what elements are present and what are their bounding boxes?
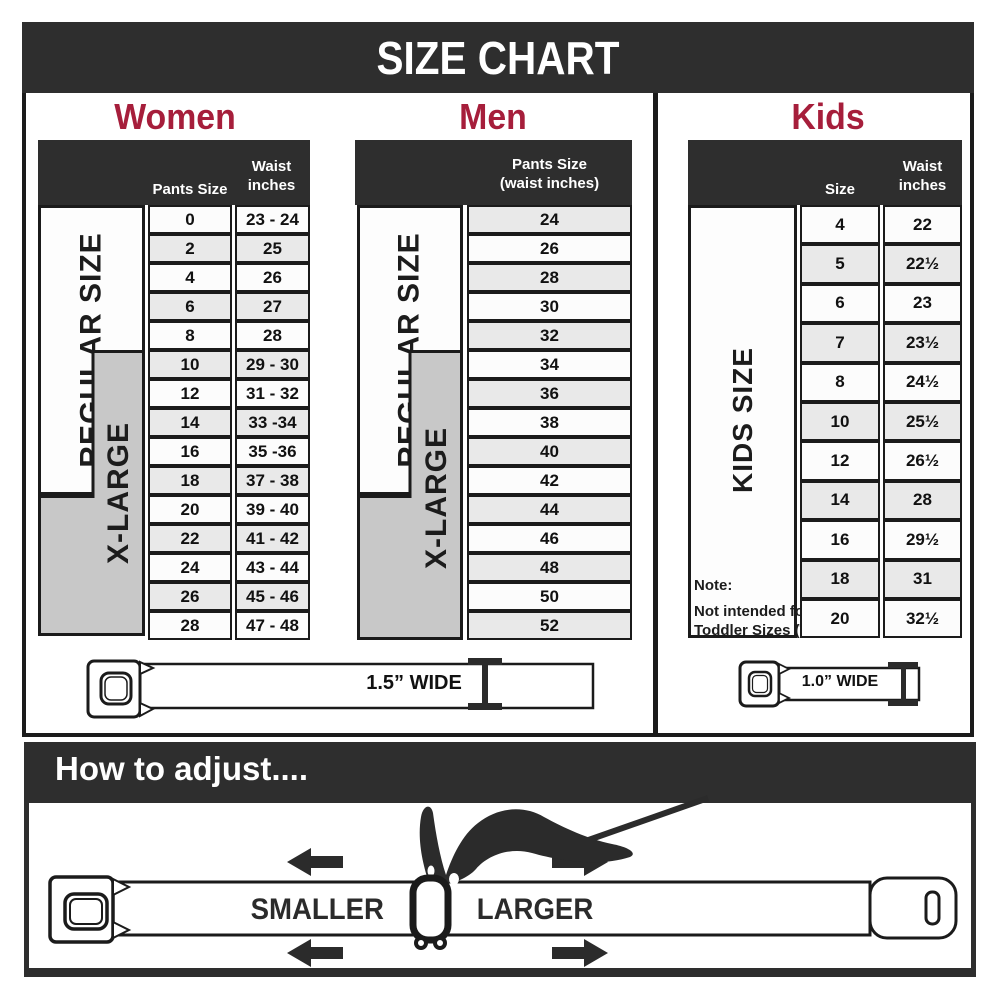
size-cell: 14 — [800, 481, 880, 520]
kids-size-label: KIDS SIZE — [688, 225, 797, 615]
men-col-pants-size: Pants Size (waist inches) — [467, 155, 632, 193]
waist-cell: 23½ — [883, 323, 962, 362]
size-cell: 20 — [800, 599, 880, 638]
waist-cell: 43 - 44 — [235, 553, 310, 582]
women-size-table: 023 - 242254266278281029 - 301231 - 3214… — [148, 205, 310, 640]
table-row: 2443 - 44 — [148, 553, 310, 582]
larger-label: LARGER — [471, 893, 600, 927]
waist-cell: 29½ — [883, 520, 962, 559]
hand-icon — [420, 798, 708, 886]
table-row: 623 — [800, 284, 962, 323]
table-row: 2241 - 42 — [148, 524, 310, 553]
size-cell: 16 — [800, 520, 880, 559]
kids-size-table: 422522½623723½824½1025½1226½14281629½183… — [800, 205, 962, 638]
pants-size-cell: 10 — [148, 350, 232, 379]
pants-size-cell: 42 — [467, 466, 632, 495]
pants-size-cell: 28 — [467, 263, 632, 292]
waist-cell: 47 - 48 — [235, 611, 310, 640]
pants-size-cell: 4 — [148, 263, 232, 292]
waist-cell: 37 - 38 — [235, 466, 310, 495]
title-bar: SIZE CHART — [22, 22, 974, 93]
women-col-waist: Waist inches — [233, 157, 310, 195]
waist-cell: 28 — [883, 481, 962, 520]
kids-col-size: Size — [800, 180, 880, 199]
table-row: 225 — [148, 234, 310, 263]
men-xlarge-label: X-LARGE — [410, 365, 463, 630]
pants-size-cell: 26 — [467, 234, 632, 263]
table-row: 1231 - 32 — [148, 379, 310, 408]
waist-cell: 41 - 42 — [235, 524, 310, 553]
table-row: 40 — [467, 437, 632, 466]
size-cell: 10 — [800, 402, 880, 441]
table-row: 38 — [467, 408, 632, 437]
table-row: 44 — [467, 495, 632, 524]
pants-size-cell: 12 — [148, 379, 232, 408]
adult-belt-width-label: 1.5” WIDE — [364, 672, 464, 695]
waist-cell: 26 — [235, 263, 310, 292]
kids-heading: Kids — [739, 96, 918, 138]
size-cell: 8 — [800, 363, 880, 402]
waist-cell: 22 — [883, 205, 962, 244]
table-row: 42 — [467, 466, 632, 495]
waist-cell: 32½ — [883, 599, 962, 638]
pants-size-cell: 16 — [148, 437, 232, 466]
waist-cell: 25½ — [883, 402, 962, 441]
table-row: 34 — [467, 350, 632, 379]
size-chart-infographic: SIZE CHART Women Men Kids Pants Size Wai… — [0, 0, 1000, 1000]
kids-belt-width-label: 1.0” WIDE — [795, 673, 885, 691]
table-row: 24 — [467, 205, 632, 234]
table-row: 26 — [467, 234, 632, 263]
waist-cell: 26½ — [883, 441, 962, 480]
men-size-table: 242628303234363840424446485052 — [467, 205, 632, 640]
waist-cell: 45 - 46 — [235, 582, 310, 611]
pants-size-cell: 40 — [467, 437, 632, 466]
table-row: 1831 — [800, 560, 962, 599]
pants-size-cell: 38 — [467, 408, 632, 437]
table-row: 2032½ — [800, 599, 962, 638]
table-row: 1025½ — [800, 402, 962, 441]
waist-cell: 28 — [235, 321, 310, 350]
pants-size-cell: 24 — [467, 205, 632, 234]
table-row: 1226½ — [800, 441, 962, 480]
table-row: 46 — [467, 524, 632, 553]
how-to-adjust-heading: How to adjust.... — [55, 750, 308, 788]
table-row: 2847 - 48 — [148, 611, 310, 640]
waist-cell: 23 — [883, 284, 962, 323]
table-row: 28 — [467, 263, 632, 292]
waist-cell: 29 - 30 — [235, 350, 310, 379]
size-cell: 7 — [800, 323, 880, 362]
size-cell: 12 — [800, 441, 880, 480]
pants-size-cell: 28 — [148, 611, 232, 640]
smaller-label: SMALLER — [251, 893, 380, 927]
men-heading: Men — [404, 96, 583, 138]
waist-cell: 27 — [235, 292, 310, 321]
size-cell: 5 — [800, 244, 880, 283]
table-row: 522½ — [800, 244, 962, 283]
belt-adjuster-icon — [413, 878, 448, 948]
table-row: 1635 -36 — [148, 437, 310, 466]
table-row: 627 — [148, 292, 310, 321]
pants-size-cell: 46 — [467, 524, 632, 553]
women-col-pants-size: Pants Size — [148, 180, 232, 199]
waist-cell: 23 - 24 — [235, 205, 310, 234]
waist-cell: 31 - 32 — [235, 379, 310, 408]
table-row: 50 — [467, 582, 632, 611]
pants-size-cell: 18 — [148, 466, 232, 495]
waist-cell: 25 — [235, 234, 310, 263]
table-row: 824½ — [800, 363, 962, 402]
table-row: 426 — [148, 263, 310, 292]
table-row: 1029 - 30 — [148, 350, 310, 379]
pants-size-cell: 52 — [467, 611, 632, 640]
pants-size-cell: 32 — [467, 321, 632, 350]
page-title: SIZE CHART — [377, 31, 620, 85]
size-cell: 18 — [800, 560, 880, 599]
pants-size-cell: 0 — [148, 205, 232, 234]
size-cell: 4 — [800, 205, 880, 244]
table-row: 2645 - 46 — [148, 582, 310, 611]
table-row: 30 — [467, 292, 632, 321]
table-row: 1629½ — [800, 520, 962, 559]
kids-note: Note: Not intended for Toddler Sizes (T) — [694, 576, 796, 640]
adjust-belt-illustration — [40, 795, 960, 970]
pants-size-cell: 2 — [148, 234, 232, 263]
pants-size-cell: 8 — [148, 321, 232, 350]
women-heading: Women — [86, 96, 265, 138]
size-cell: 6 — [800, 284, 880, 323]
table-row: 2039 - 40 — [148, 495, 310, 524]
table-row: 36 — [467, 379, 632, 408]
pants-size-cell: 24 — [148, 553, 232, 582]
panel-divider — [653, 93, 658, 737]
table-row: 1428 — [800, 481, 962, 520]
table-row: 48 — [467, 553, 632, 582]
table-row: 1837 - 38 — [148, 466, 310, 495]
table-row: 828 — [148, 321, 310, 350]
table-row: 1433 -34 — [148, 408, 310, 437]
table-row: 023 - 24 — [148, 205, 310, 234]
pants-size-cell: 48 — [467, 553, 632, 582]
adult-belt-icon — [55, 655, 615, 725]
pants-size-cell: 36 — [467, 379, 632, 408]
pants-size-cell: 34 — [467, 350, 632, 379]
pants-size-cell: 26 — [148, 582, 232, 611]
women-xlarge-label: X-LARGE — [93, 360, 145, 626]
table-row: 32 — [467, 321, 632, 350]
waist-cell: 22½ — [883, 244, 962, 283]
kids-col-waist: Waist inches — [883, 157, 962, 195]
waist-cell: 33 -34 — [235, 408, 310, 437]
pants-size-cell: 6 — [148, 292, 232, 321]
pants-size-cell: 14 — [148, 408, 232, 437]
pants-size-cell: 50 — [467, 582, 632, 611]
waist-cell: 39 - 40 — [235, 495, 310, 524]
pants-size-cell: 30 — [467, 292, 632, 321]
pants-size-cell: 44 — [467, 495, 632, 524]
waist-cell: 35 -36 — [235, 437, 310, 466]
waist-cell: 24½ — [883, 363, 962, 402]
table-row: 723½ — [800, 323, 962, 362]
pants-size-cell: 20 — [148, 495, 232, 524]
table-row: 52 — [467, 611, 632, 640]
pants-size-cell: 22 — [148, 524, 232, 553]
waist-cell: 31 — [883, 560, 962, 599]
table-row: 422 — [800, 205, 962, 244]
